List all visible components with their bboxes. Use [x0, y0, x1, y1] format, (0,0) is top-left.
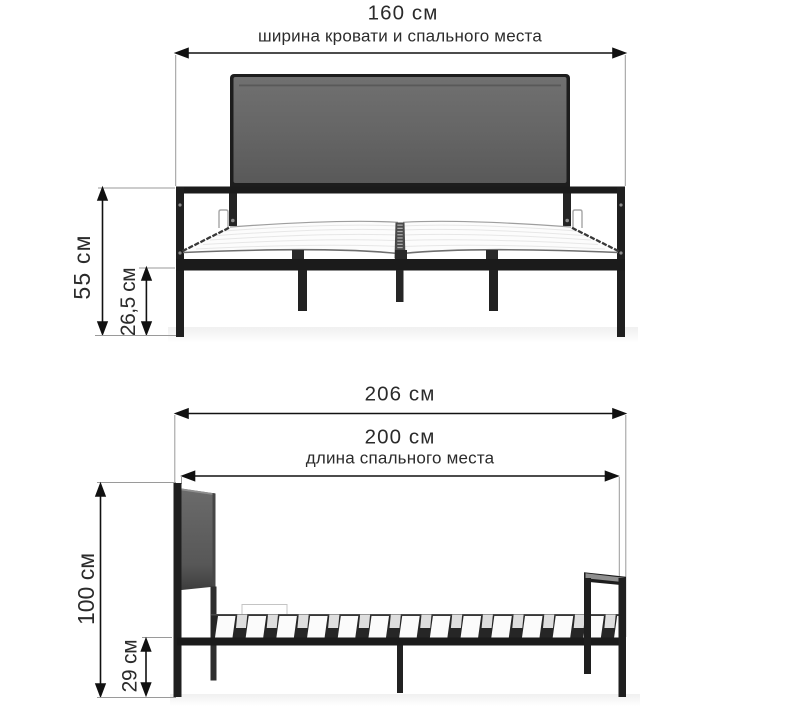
svg-text:206 см: 206 см [365, 383, 436, 406]
svg-text:29 см: 29 см [119, 640, 142, 693]
svg-text:длина спального места: длина спального места [306, 449, 495, 468]
svg-text:100 см: 100 см [73, 553, 99, 625]
svg-text:26,5 см: 26,5 см [117, 268, 140, 336]
svg-text:ширина кровати и спального мес: ширина кровати и спального места [258, 27, 542, 46]
svg-text:55 см: 55 см [69, 234, 95, 299]
svg-text:200 см: 200 см [365, 426, 436, 449]
svg-text:160 см: 160 см [368, 2, 439, 25]
